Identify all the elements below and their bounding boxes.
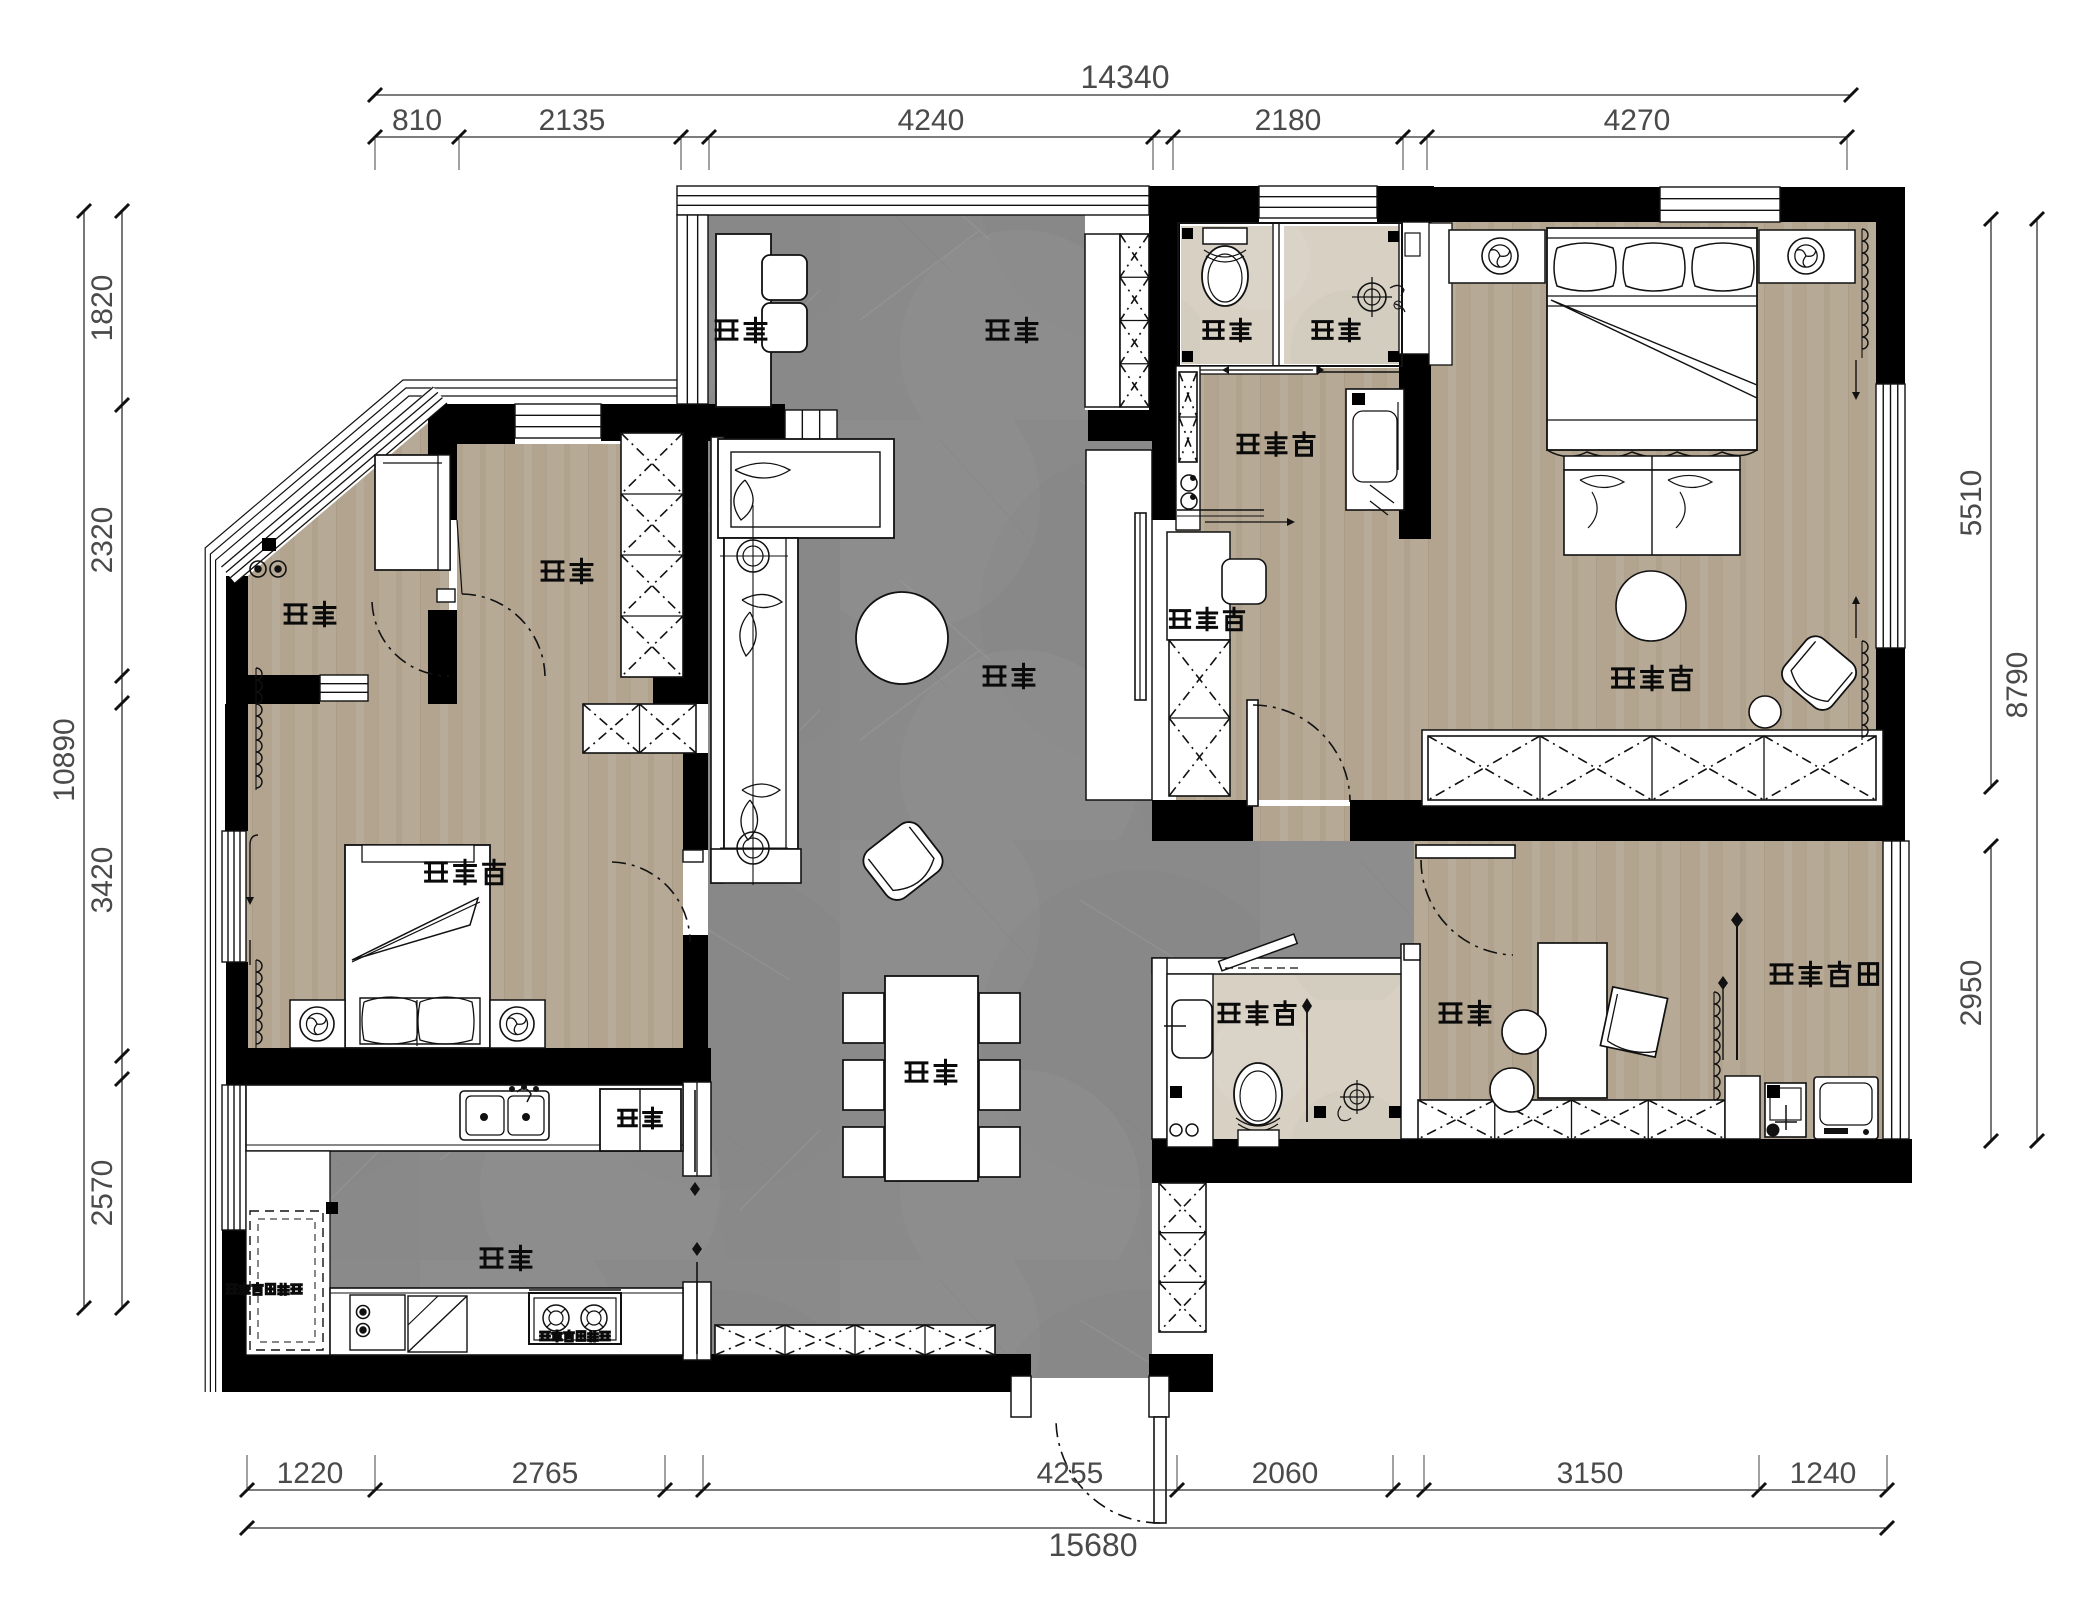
svg-text:2320: 2320 [86,507,119,574]
svg-text:1220: 1220 [277,1457,344,1490]
svg-text:2180: 2180 [1255,104,1322,137]
svg-text:4240: 4240 [898,104,965,137]
svg-text:3150: 3150 [1557,1457,1624,1490]
svg-text:4255: 4255 [1037,1457,1104,1490]
svg-text:8790: 8790 [2001,652,2034,719]
svg-text:1820: 1820 [86,275,119,342]
svg-text:2950: 2950 [1955,960,1988,1027]
svg-text:2060: 2060 [1252,1457,1319,1490]
svg-text:14340: 14340 [1081,59,1170,95]
svg-text:15680: 15680 [1049,1527,1138,1563]
svg-text:1240: 1240 [1790,1457,1857,1490]
svg-text:810: 810 [392,104,442,137]
svg-text:2135: 2135 [539,104,606,137]
svg-text:10890: 10890 [48,718,81,801]
svg-text:5510: 5510 [1955,470,1988,537]
svg-text:2570: 2570 [86,1160,119,1227]
svg-text:2765: 2765 [512,1457,579,1490]
svg-text:4270: 4270 [1604,104,1671,137]
svg-text:3420: 3420 [86,847,119,914]
